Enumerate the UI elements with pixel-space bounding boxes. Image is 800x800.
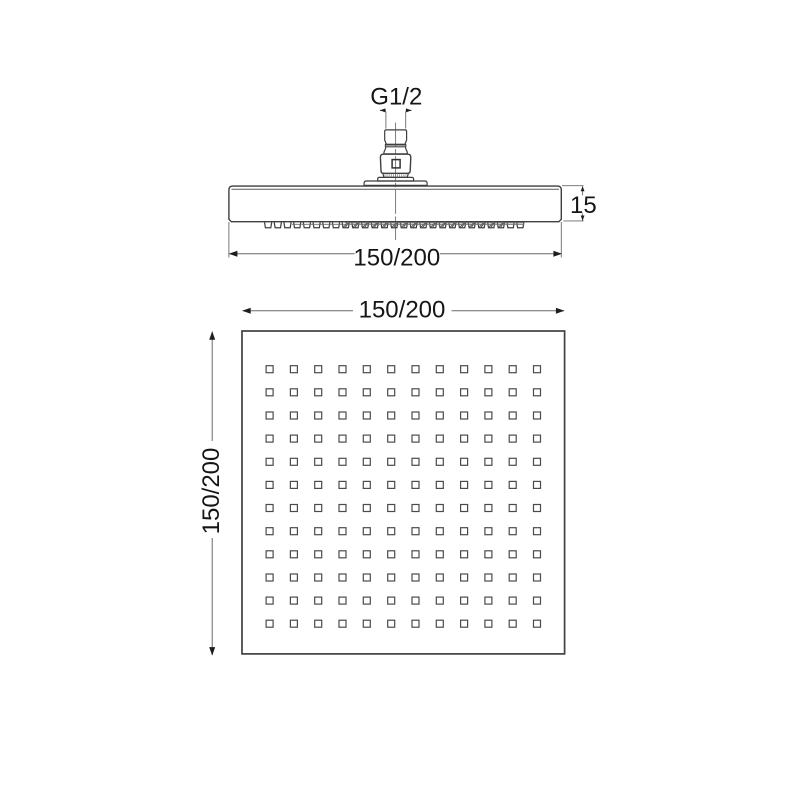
svg-text:G1/2: G1/2 [370, 83, 422, 110]
svg-text:15: 15 [570, 192, 597, 219]
svg-text:150/200: 150/200 [353, 244, 440, 271]
svg-text:150/200: 150/200 [359, 297, 446, 324]
svg-text:150/200: 150/200 [198, 448, 225, 535]
